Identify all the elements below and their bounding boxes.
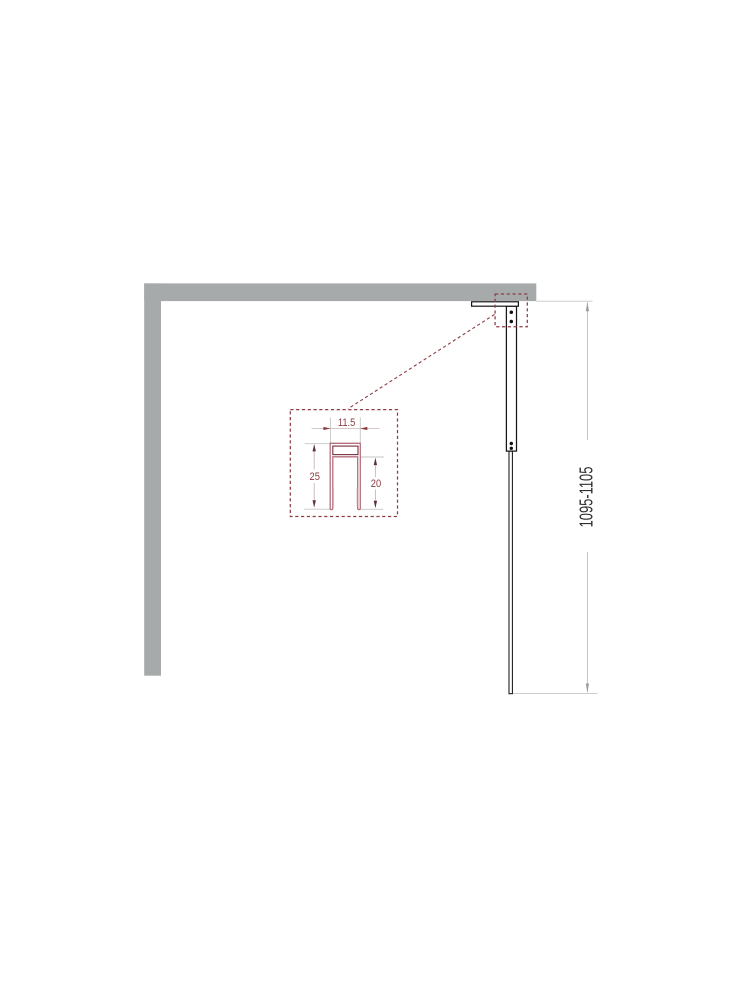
svg-text:11.5: 11.5 [338,417,356,429]
svg-text:25: 25 [310,472,321,484]
svg-text:20: 20 [371,479,382,491]
svg-text:1095-1105: 1095-1105 [577,466,597,527]
